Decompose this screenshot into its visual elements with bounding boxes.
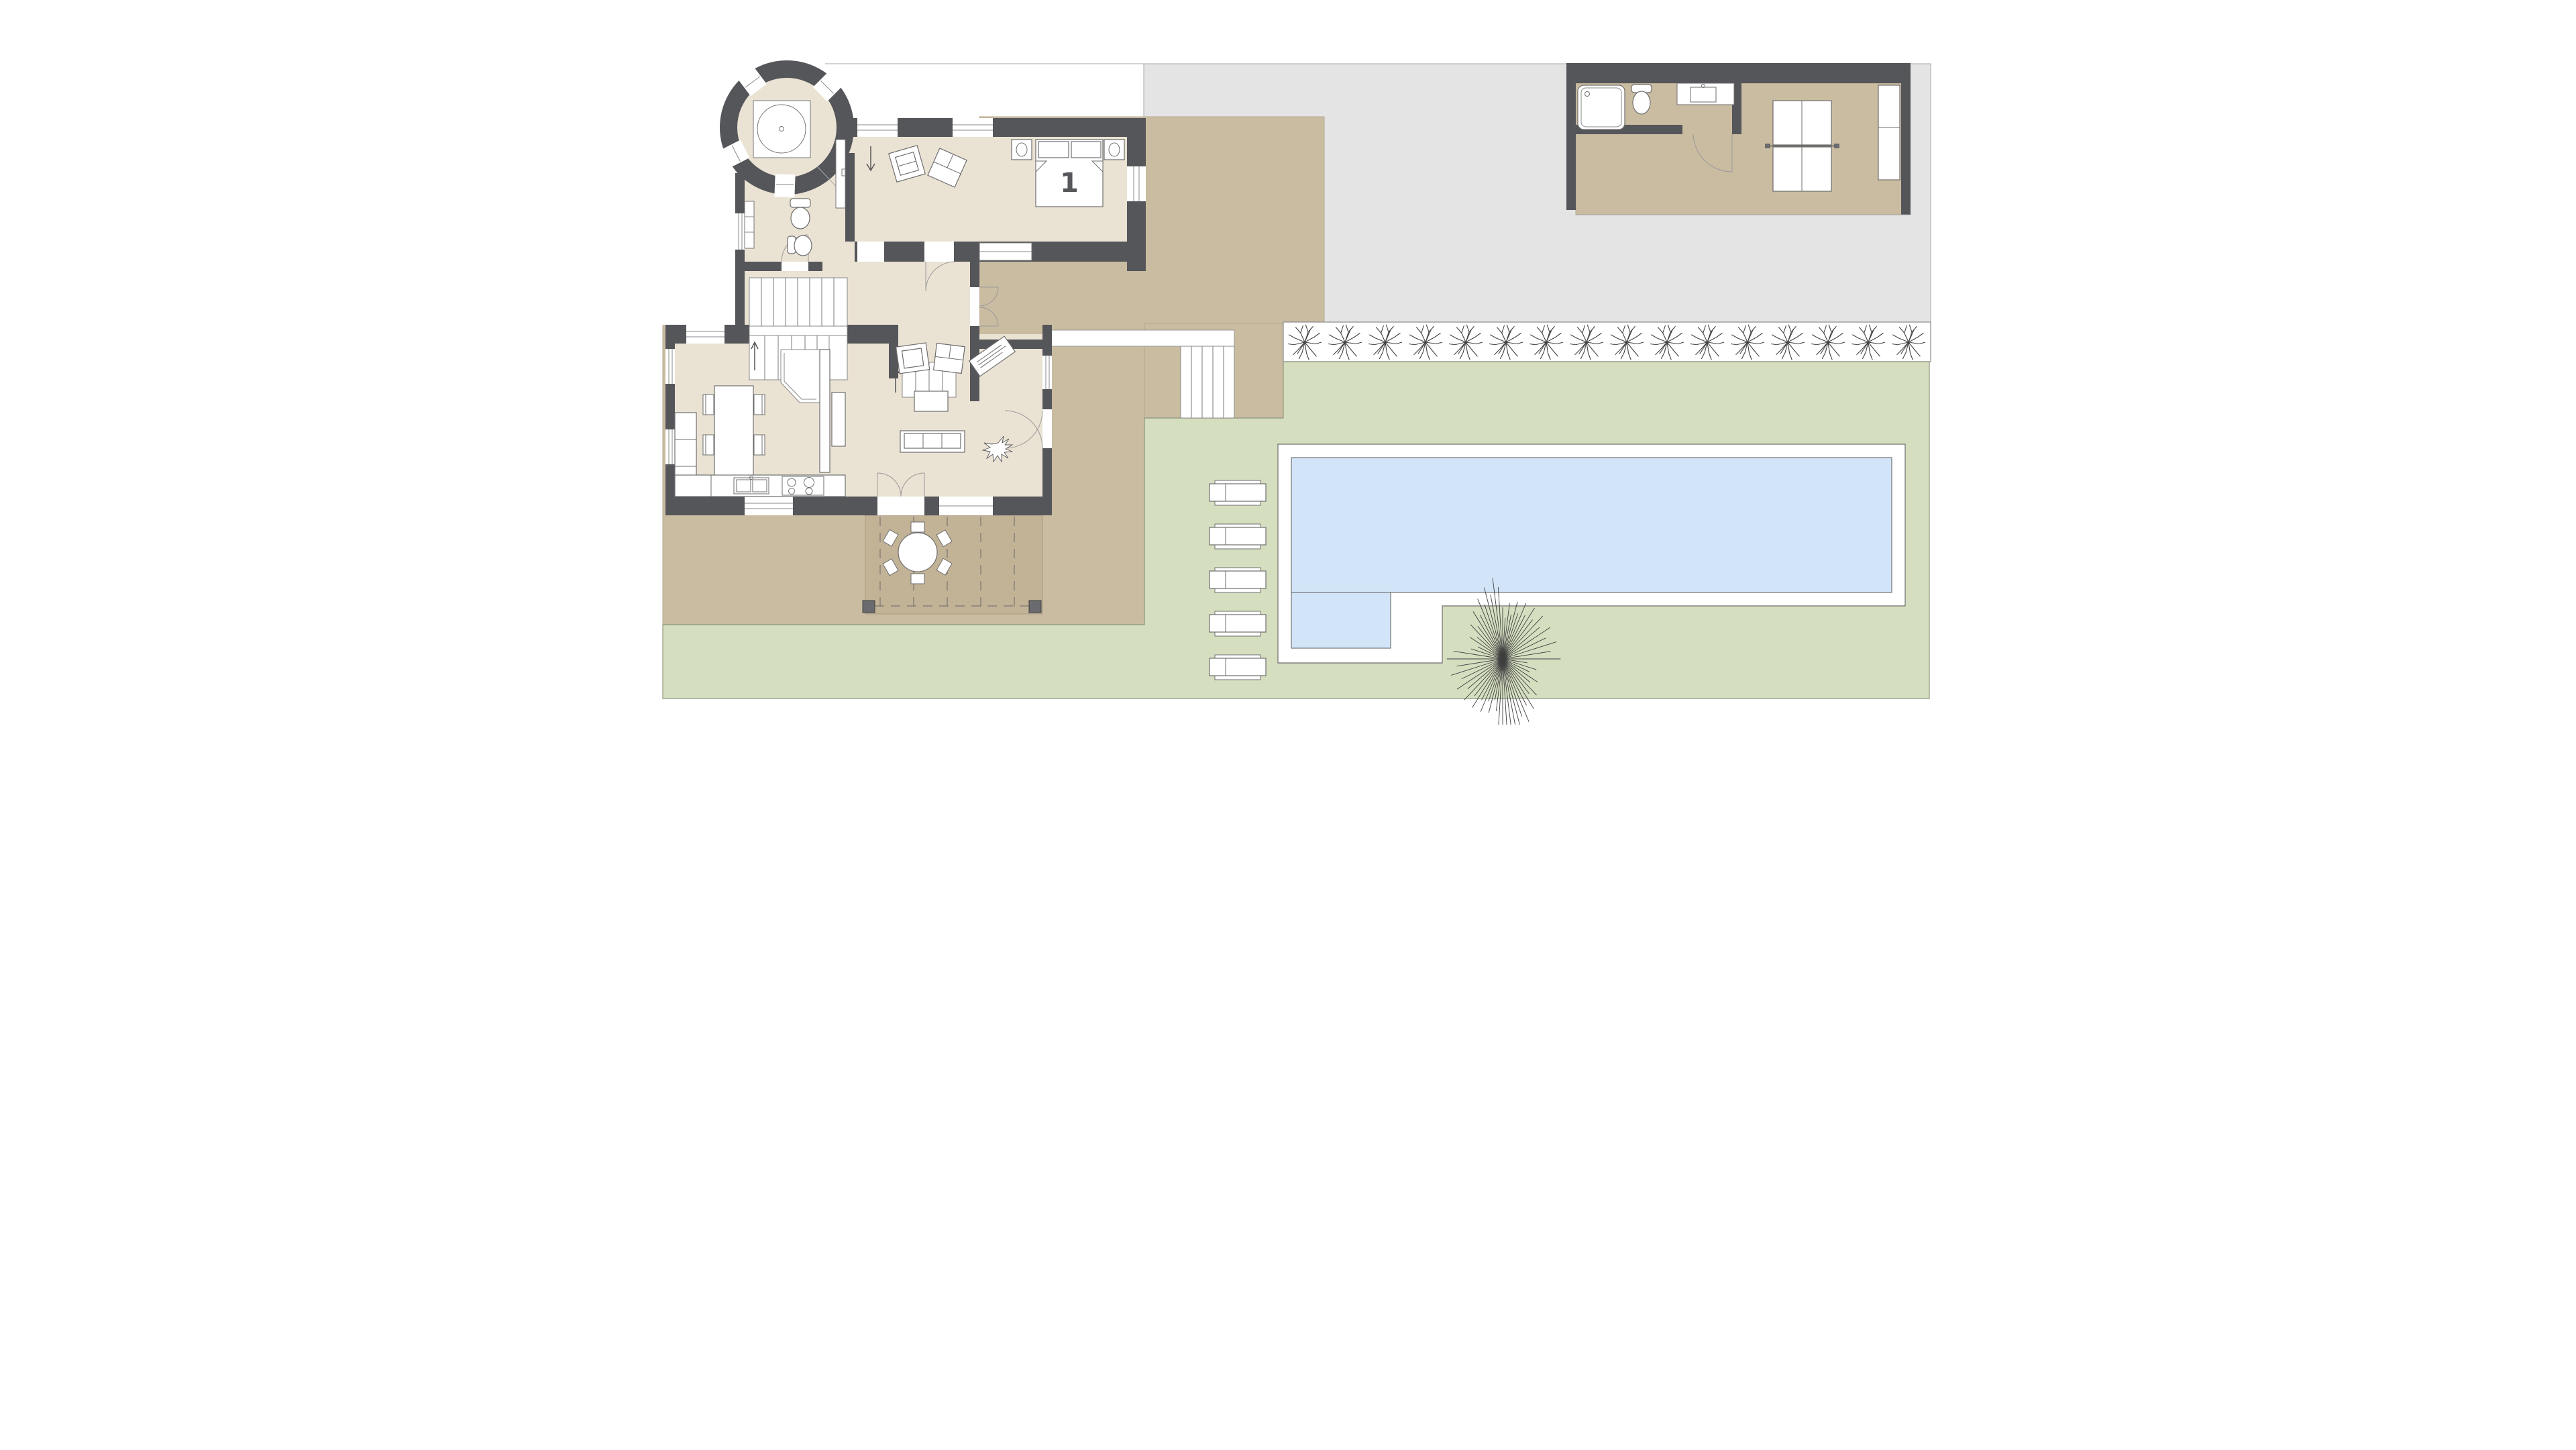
hedge-band: [1283, 322, 1931, 362]
coffee-table-icon: [914, 391, 948, 411]
hot-tub-icon: [753, 101, 810, 158]
sink-icon: [734, 476, 769, 495]
nightstand-icon: [1104, 140, 1124, 160]
bathtub-icon: [1578, 85, 1625, 130]
bidet-icon: [788, 236, 812, 256]
sun-lounger-icon: [1210, 524, 1266, 549]
walkway: [1050, 330, 1234, 346]
pergola-post: [863, 601, 875, 613]
vanity-sink-icon: [1677, 83, 1734, 105]
armchair-icon: [934, 344, 965, 374]
vanity-icon: [745, 201, 754, 248]
floor-plan-canvas: 1: [644, 0, 1932, 725]
cooktop-icon: [782, 476, 824, 495]
sideboard-icon: [820, 350, 830, 472]
toilet-icon: [1631, 85, 1652, 114]
sun-lounger-icon: [1210, 655, 1266, 680]
bedroom-number-label: 1: [1060, 168, 1079, 199]
armchair-icon: [896, 343, 930, 374]
sun-lounger-icon: [1210, 480, 1266, 505]
window-icon: [1127, 166, 1146, 201]
wardrobe-icon: [836, 140, 845, 208]
garden-steps: [1181, 346, 1234, 418]
garage-floor: [1576, 83, 1909, 215]
shelf-cabinet-icon: [1878, 85, 1900, 180]
sofa-icon: [900, 431, 965, 452]
sun-lounger-icon: [1210, 568, 1266, 592]
floor-plan-svg: 1: [644, 0, 1932, 725]
sun-lounger-icon: [1210, 611, 1266, 636]
ping-pong-table-icon: [1765, 101, 1839, 191]
nightstand-icon: [1012, 140, 1032, 160]
bed-icon: 1: [1036, 140, 1103, 207]
shelf-icon: [832, 393, 845, 446]
toilet-icon: [790, 199, 810, 229]
pergola-post: [1029, 601, 1041, 613]
